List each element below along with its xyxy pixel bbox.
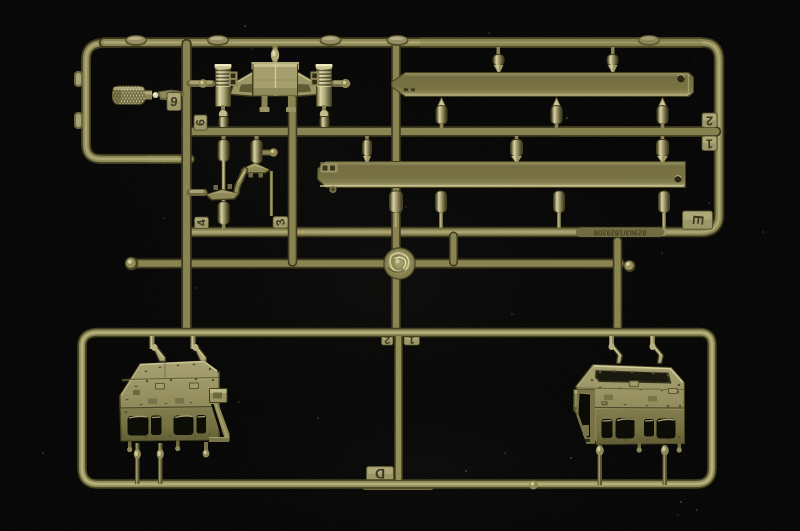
svg-text:2: 2: [706, 113, 713, 127]
svg-text:6: 6: [194, 119, 208, 126]
svg-text:1: 1: [706, 136, 713, 150]
svg-text:82963/1829208: 82963/1829208: [594, 229, 647, 236]
svg-text:E: E: [689, 214, 707, 225]
